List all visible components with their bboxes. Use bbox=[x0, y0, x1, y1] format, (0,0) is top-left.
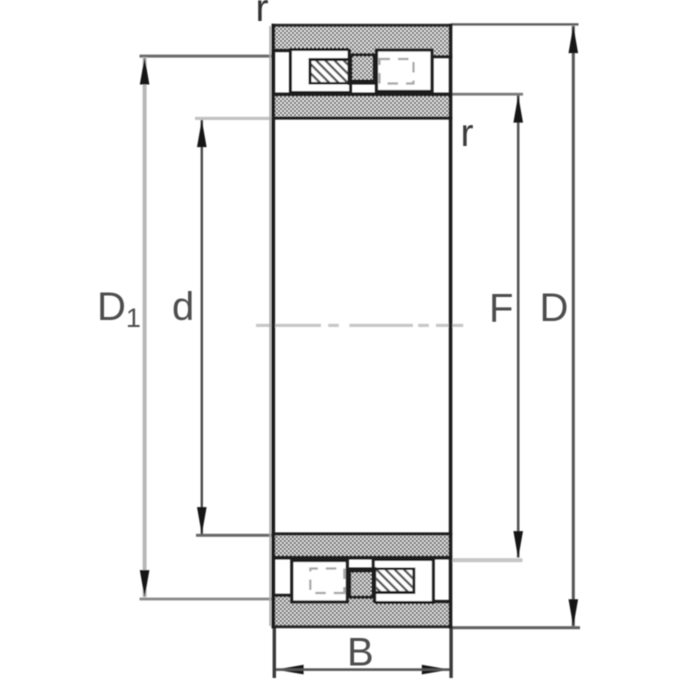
svg-text:F: F bbox=[489, 287, 513, 331]
svg-text:r: r bbox=[256, 0, 269, 30]
svg-text:d: d bbox=[172, 285, 194, 329]
svg-text:B: B bbox=[347, 631, 374, 675]
svg-text:r: r bbox=[461, 112, 474, 155]
svg-text:D: D bbox=[540, 286, 569, 330]
